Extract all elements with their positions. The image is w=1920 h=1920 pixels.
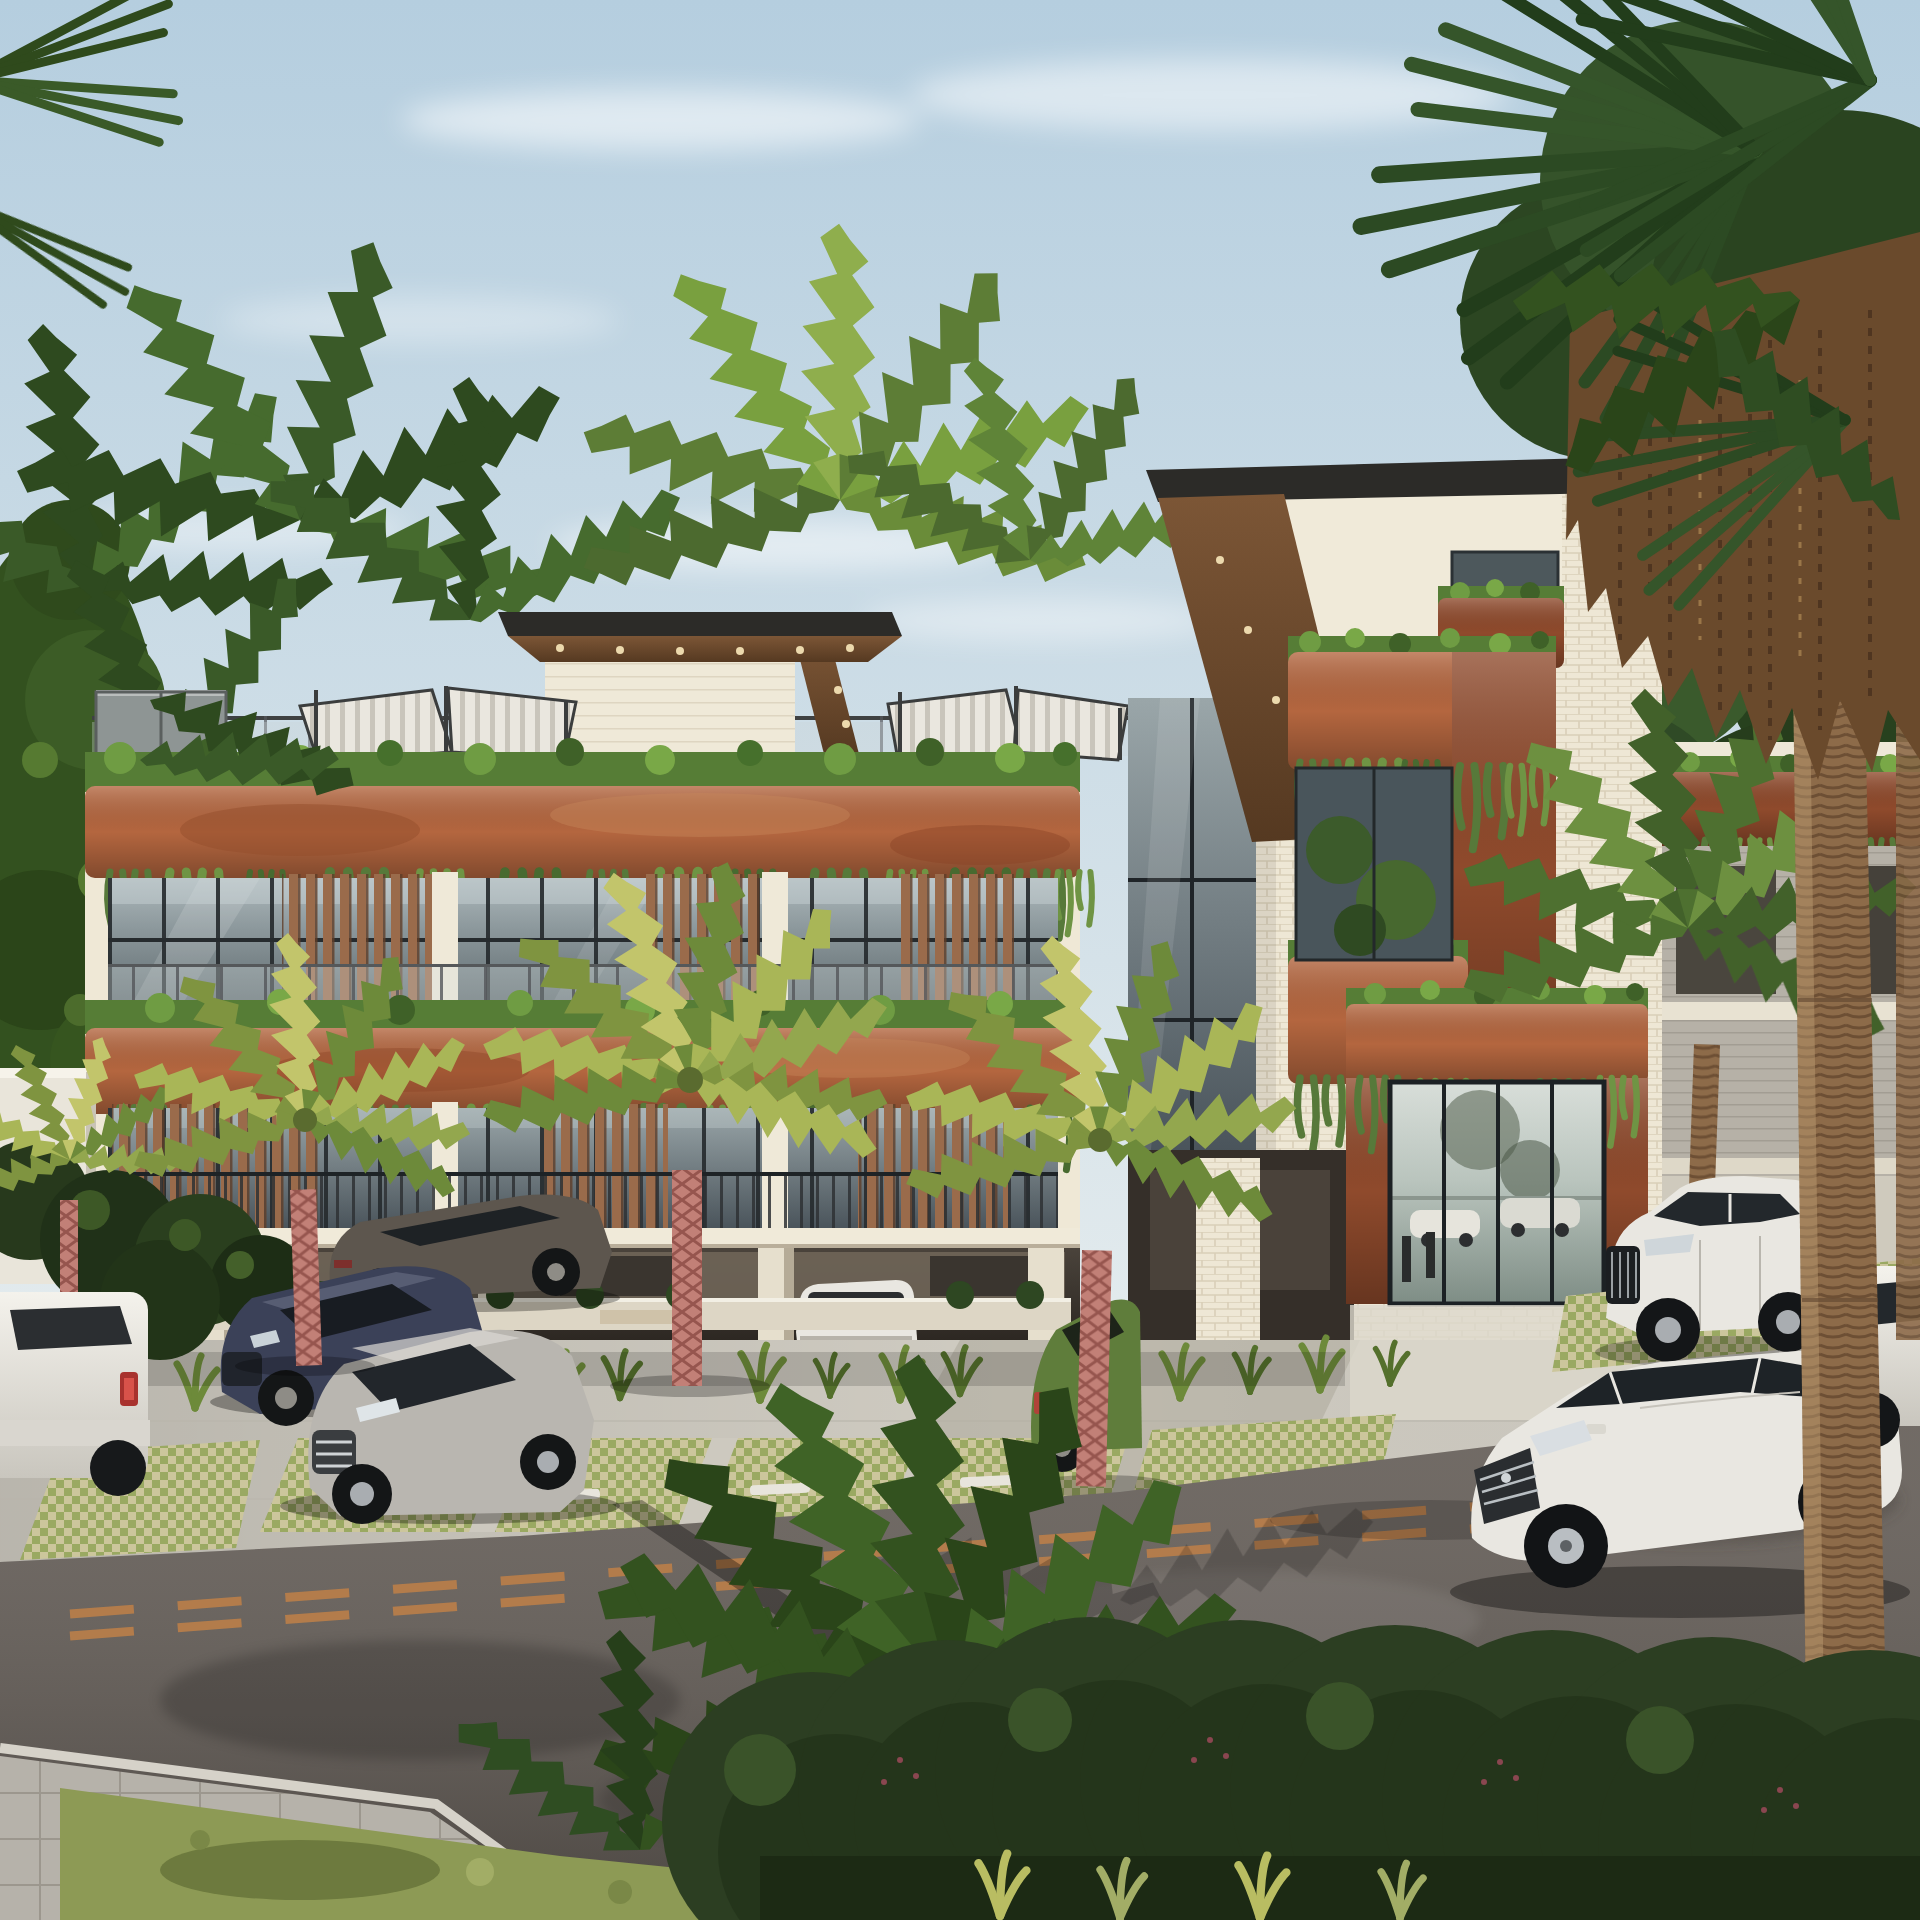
copper-frame-glass — [1296, 768, 1452, 960]
planter-band-upper — [85, 786, 1080, 878]
rooftop-fascia — [498, 612, 902, 636]
car-sedan-white-rear — [0, 1292, 150, 1496]
bollard — [1426, 1232, 1435, 1278]
entrance-glass — [1390, 1082, 1604, 1304]
architectural-rendering — [0, 0, 1920, 1920]
bollard — [1402, 1236, 1411, 1282]
